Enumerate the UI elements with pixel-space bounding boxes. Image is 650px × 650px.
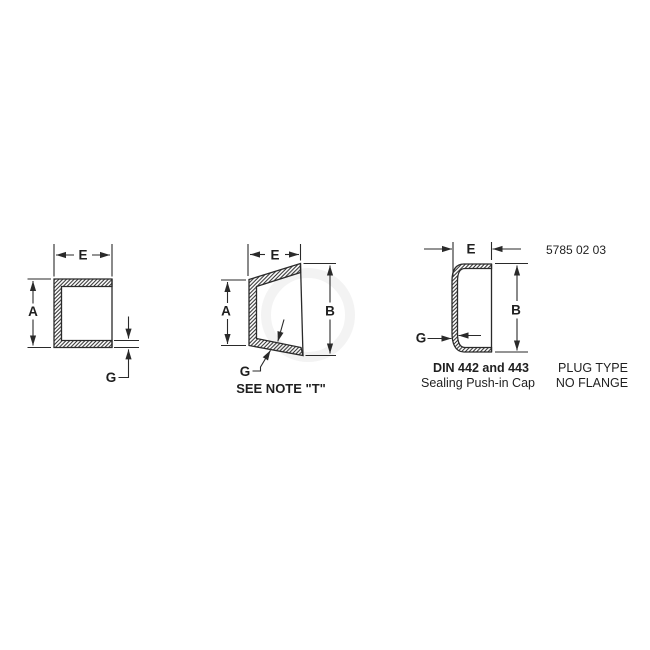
dim-label-g: G bbox=[240, 364, 251, 379]
dim-label-e: E bbox=[270, 248, 279, 263]
type-line1-text: PLUG TYPE bbox=[558, 361, 628, 375]
dim-label-b: B bbox=[325, 304, 335, 319]
see-note-t-text: SEE NOTE "T" bbox=[236, 381, 326, 396]
dim-label-g: G bbox=[106, 370, 117, 385]
square-cap-labels: E A G bbox=[28, 248, 116, 386]
type-line2-text: NO FLANGE bbox=[556, 376, 628, 390]
dim-g-arrow-inner bbox=[278, 320, 284, 342]
din-442-443-cap-drawing: E A G E A B G SEE NOTE "T" bbox=[0, 0, 650, 650]
dim-label-a: A bbox=[221, 304, 231, 319]
dim-g-leader-arrow-outer bbox=[253, 350, 271, 371]
dim-label-g: G bbox=[416, 331, 427, 346]
technical-drawing-page: E A G E A B G SEE NOTE "T" bbox=[0, 0, 650, 650]
dim-g-gap-lines bbox=[114, 341, 139, 348]
dim-label-e: E bbox=[78, 248, 87, 263]
part-number-text: 5785 02 03 bbox=[546, 243, 606, 257]
plug-cap-section-wall bbox=[452, 264, 492, 352]
dim-label-b: B bbox=[511, 303, 521, 318]
standard-text: DIN 442 and 443 bbox=[433, 361, 529, 375]
plug-cap-view bbox=[424, 242, 528, 352]
dim-g-leader-arrow-up bbox=[119, 349, 129, 377]
square-cap-view bbox=[28, 244, 140, 378]
dim-label-e: E bbox=[466, 242, 475, 257]
square-cap-section-wall bbox=[54, 279, 112, 348]
dim-label-a: A bbox=[28, 304, 38, 319]
cap-title-text: Sealing Push-in Cap bbox=[421, 376, 535, 390]
